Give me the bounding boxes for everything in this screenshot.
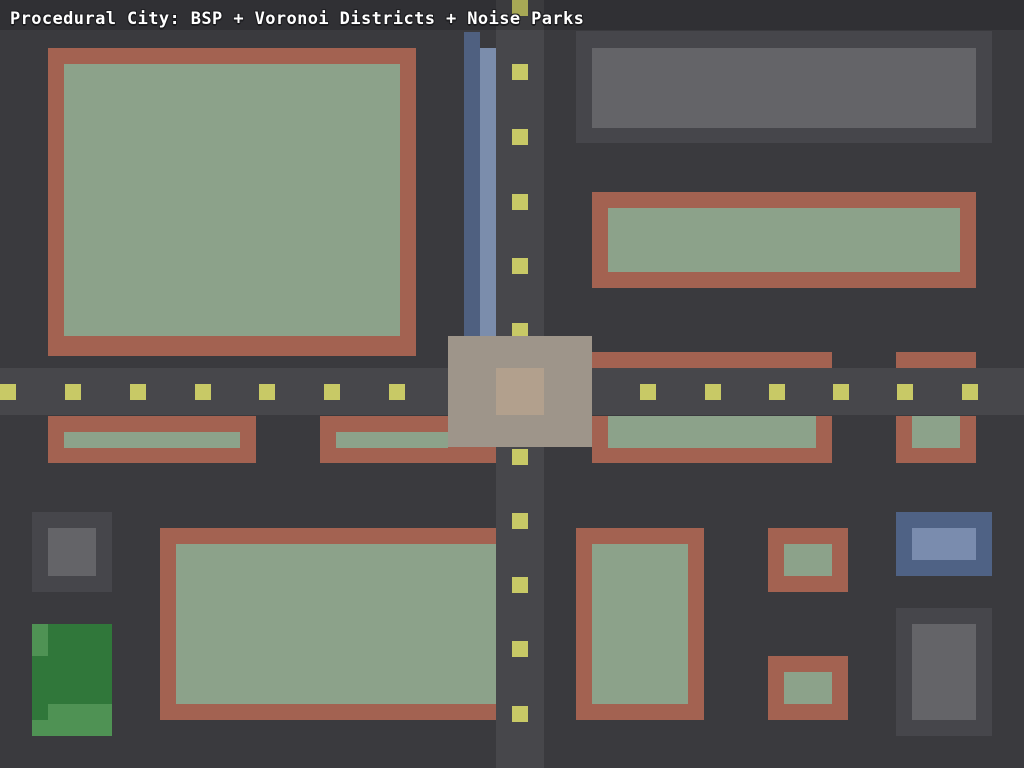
brick-building [592,352,832,368]
brick-building-courtyard [608,208,960,272]
brick-building-courtyard [784,672,832,704]
lane-dash [640,384,656,400]
lane-dash [512,706,528,722]
lane-dash [130,384,146,400]
lane-dash [769,384,785,400]
lane-dash [512,194,528,210]
lane-dash [962,384,978,400]
brick-building-courtyard [336,432,448,448]
lane-dash [195,384,211,400]
lane-dash [259,384,275,400]
brick-building-courtyard [784,544,832,576]
brick-building-courtyard [64,64,400,336]
lane-dash [897,384,913,400]
page-title: Procedural City: BSP + Voronoi Districts… [10,9,584,29]
brick-building-courtyard [64,432,240,448]
lane-dash [705,384,721,400]
office-building-courtyard [592,48,976,128]
lane-dash [512,129,528,145]
lane-dash [512,641,528,657]
lane-dash [512,64,528,80]
brick-building-courtyard [608,416,816,448]
river-dark-strip [464,32,480,336]
noise-park-patch [48,704,112,736]
lane-dash [324,384,340,400]
river-light-strip [480,48,496,336]
city-map-canvas: Procedural City: BSP + Voronoi Districts… [0,0,1024,768]
noise-park-patch [32,720,48,736]
brick-building-courtyard [592,544,688,704]
lane-dash [512,513,528,529]
intersection-core [496,368,544,415]
office-building-courtyard [912,624,976,720]
brick-building [896,352,976,368]
brick-building-courtyard [176,544,496,704]
noise-park-patch [32,624,48,656]
lane-dash [512,449,528,465]
lane-dash [65,384,81,400]
office-building-courtyard [48,528,96,576]
lane-dash [512,577,528,593]
brick-building-courtyard [912,416,960,448]
lane-dash [833,384,849,400]
lane-dash [0,384,16,400]
blue-building-courtyard [912,528,976,560]
lane-dash [389,384,405,400]
lane-dash [512,258,528,274]
